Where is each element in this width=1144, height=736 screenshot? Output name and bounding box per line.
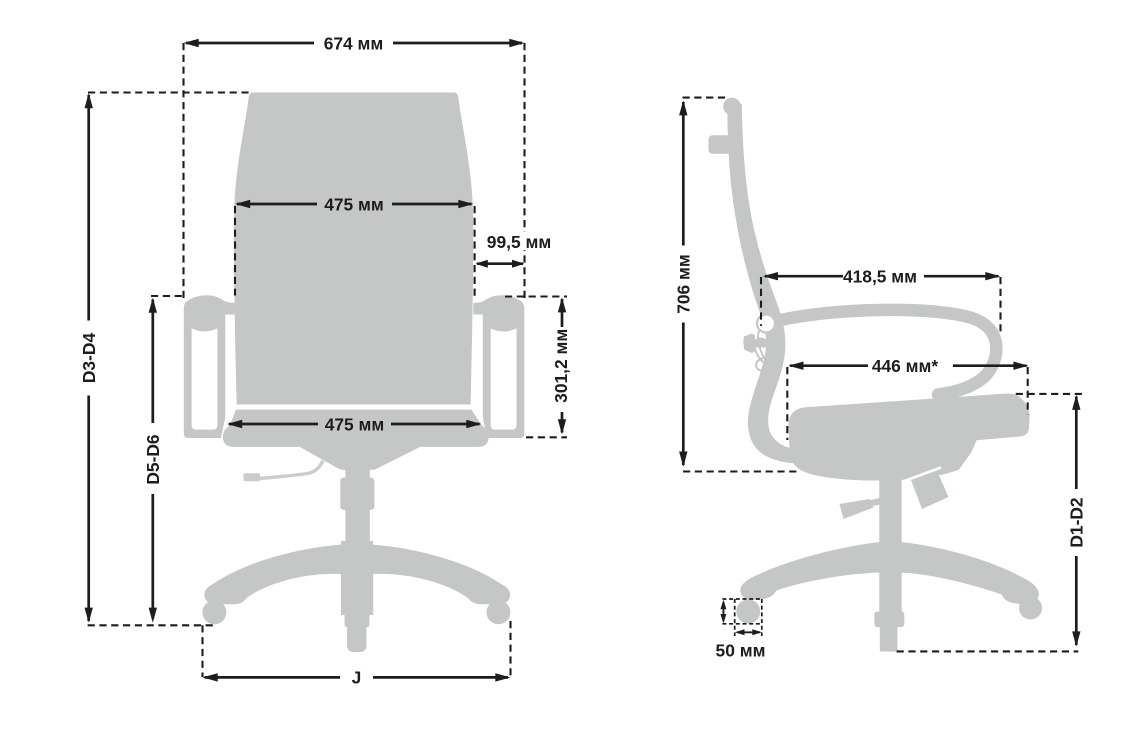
svg-text:418,5 мм: 418,5 мм — [843, 267, 917, 287]
svg-text:99,5 мм: 99,5 мм — [487, 232, 551, 252]
svg-text:475 мм: 475 мм — [325, 414, 385, 434]
svg-text:D1-D2: D1-D2 — [1067, 497, 1087, 547]
svg-text:301,2 мм: 301,2 мм — [551, 329, 571, 403]
svg-text:D5-D6: D5-D6 — [143, 434, 163, 485]
svg-text:475 мм: 475 мм — [324, 194, 384, 214]
svg-text:D3-D4: D3-D4 — [79, 333, 99, 384]
svg-text:50 мм: 50 мм — [716, 641, 766, 661]
svg-text:J: J — [352, 668, 362, 688]
svg-text:674 мм: 674 мм — [324, 33, 384, 53]
svg-text:446 мм*: 446 мм* — [872, 356, 939, 376]
svg-text:706 мм: 706 мм — [674, 254, 694, 314]
